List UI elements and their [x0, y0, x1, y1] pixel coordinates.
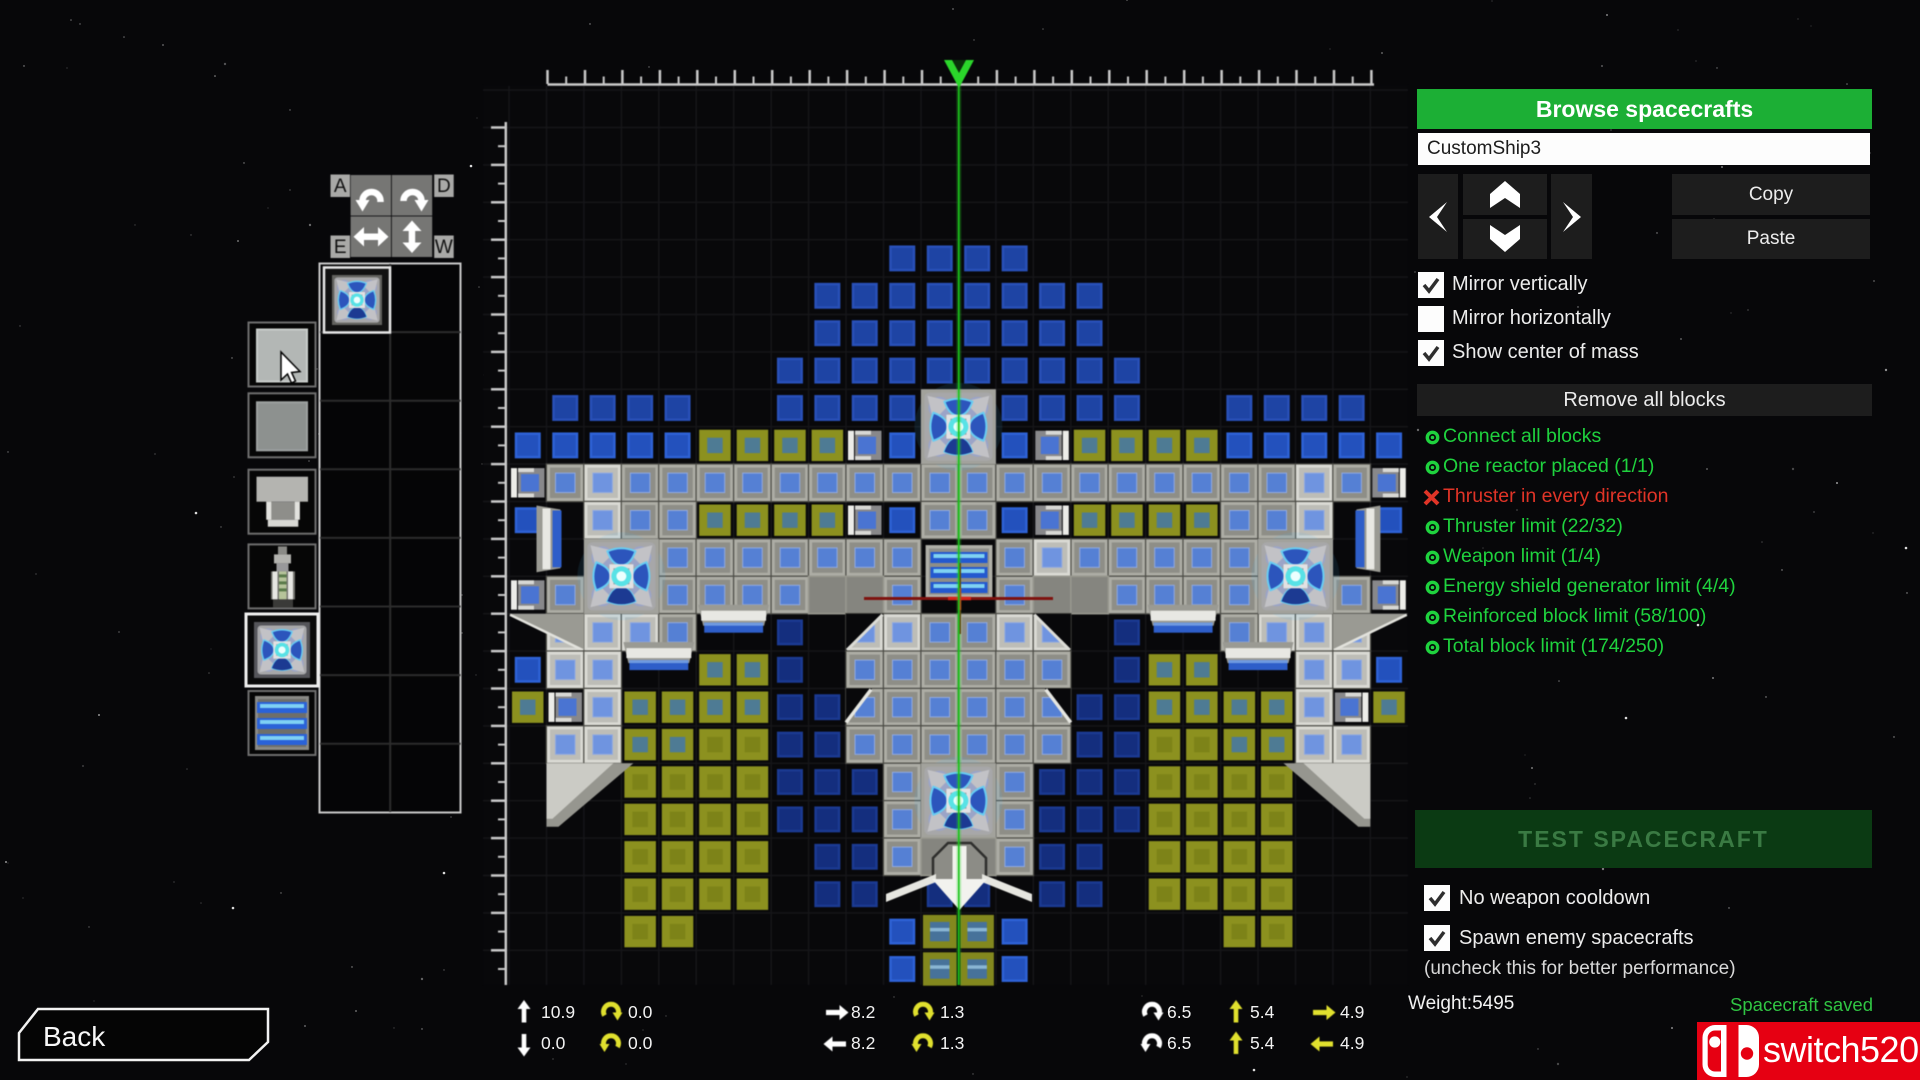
- svg-text:D: D: [437, 176, 451, 197]
- svg-text:E: E: [334, 237, 347, 258]
- svg-text:A: A: [334, 176, 347, 197]
- svg-text:W: W: [435, 237, 453, 258]
